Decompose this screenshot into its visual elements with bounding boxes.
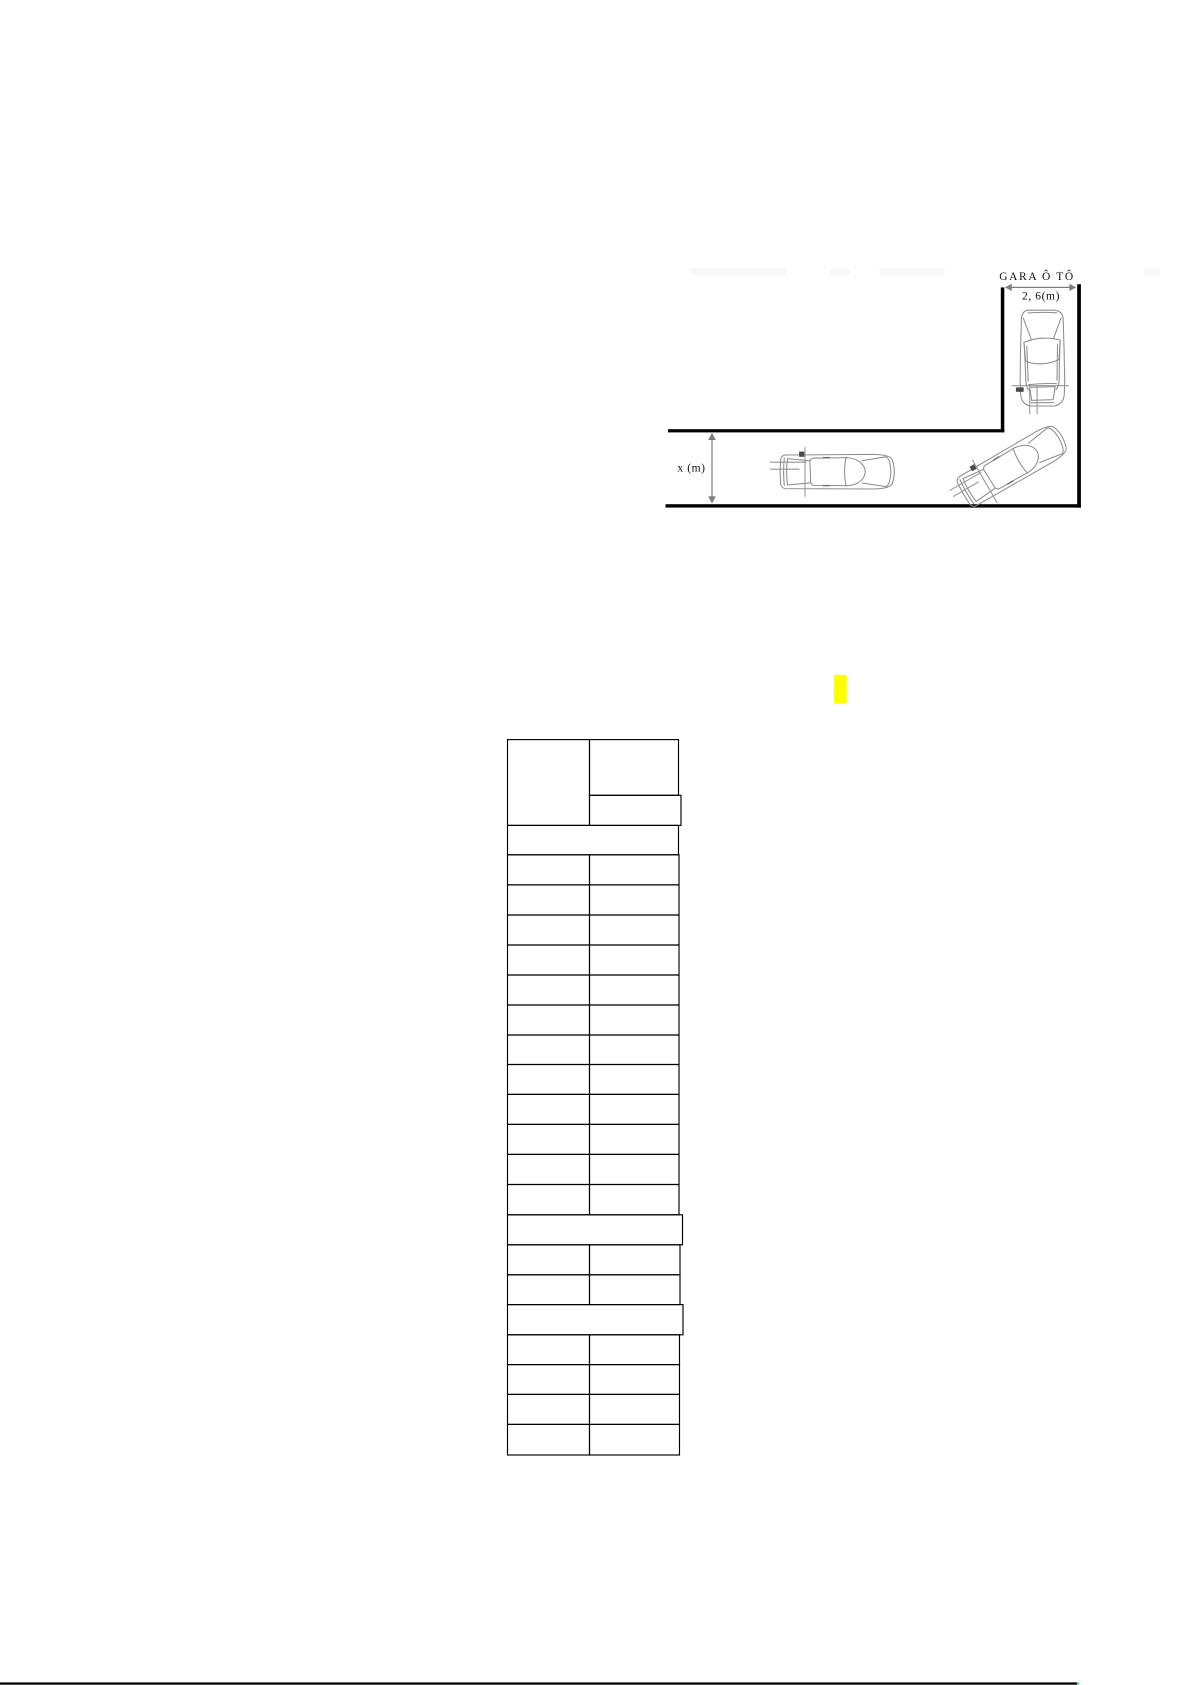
svg-text:x (m): x (m) [677,463,705,475]
svg-text:GARA Ô TÔ: GARA Ô TÔ [999,269,1075,283]
svg-text:2, 6(m): 2, 6(m) [1022,291,1060,303]
